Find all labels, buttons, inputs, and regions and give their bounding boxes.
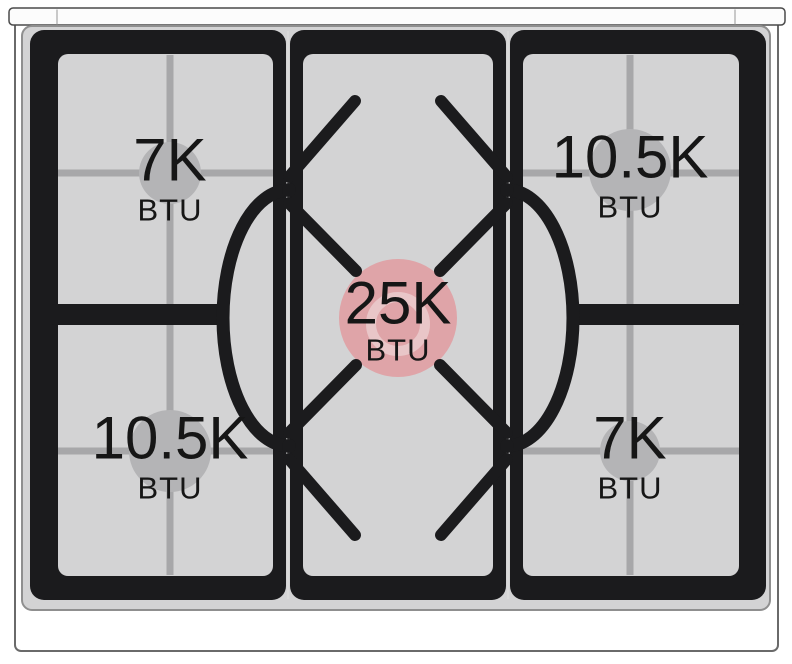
burner-top-left-value: 7K	[133, 127, 206, 194]
junction-bottom-right	[500, 439, 514, 453]
grate-midbar-right	[572, 304, 744, 325]
burner-center-unit: BTU	[366, 333, 431, 368]
grate-midbar-left	[52, 304, 224, 325]
cooktop-diagram: 7K BTU 10.5K BTU 25K BTU 10.5K BTU 7K BT…	[0, 0, 792, 664]
burner-bottom-left-value: 10.5K	[92, 405, 249, 472]
burner-top-right-value: 10.5K	[552, 124, 709, 191]
back-rail	[9, 8, 785, 25]
junction-bottom-left	[282, 439, 296, 453]
junction-top-right	[500, 183, 514, 197]
burner-bottom-right-value: 7K	[593, 405, 666, 472]
burner-top-left-unit: BTU	[138, 193, 203, 228]
burner-top-right-unit: BTU	[598, 190, 663, 225]
burner-center-value: 25K	[345, 270, 452, 337]
burner-bottom-right-unit: BTU	[598, 471, 663, 506]
junction-top-left	[282, 183, 296, 197]
burner-bottom-left-unit: BTU	[138, 471, 203, 506]
